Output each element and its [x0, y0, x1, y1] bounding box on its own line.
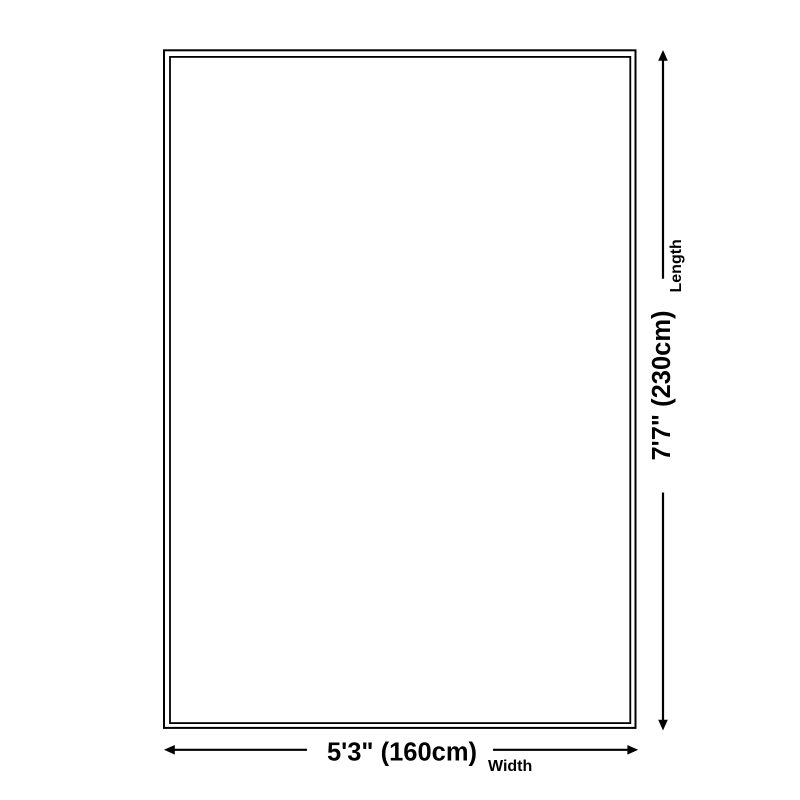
svg-text:Length: Length — [668, 239, 685, 292]
svg-text:5'3" (160cm): 5'3" (160cm) — [327, 739, 477, 767]
svg-text:7'7" (230cm): 7'7" (230cm) — [648, 311, 676, 461]
svg-text:Width: Width — [488, 758, 532, 775]
